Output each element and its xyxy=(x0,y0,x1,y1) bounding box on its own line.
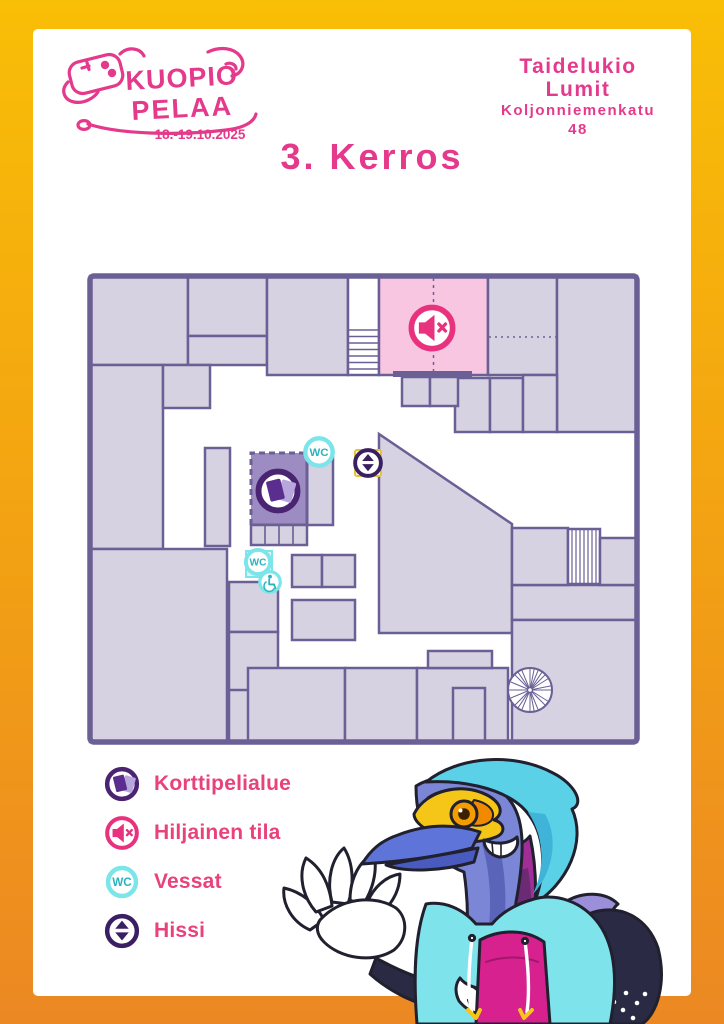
wc-icon xyxy=(104,864,140,900)
logo-text-bottom: PELAA xyxy=(131,91,234,126)
legend-item-quiet-room: Hiljainen tila xyxy=(104,815,291,851)
legend-label: Hissi xyxy=(154,919,205,943)
venue-block: Taidelukio Lumit Koljonniemenkatu 48 xyxy=(478,56,678,138)
legend: Korttipelialue Hiljainen tila Vessat His… xyxy=(104,766,291,949)
accessible-wc-icon xyxy=(260,572,281,593)
wc-icon-upper xyxy=(305,438,332,465)
venue-name-line2: Lumit xyxy=(478,79,678,102)
wc-icon-lower xyxy=(246,550,270,574)
stairs-right xyxy=(568,529,600,584)
event-mascot-bird xyxy=(276,752,664,1024)
quiet-room-icon xyxy=(411,307,452,348)
legend-label: Hiljainen tila xyxy=(154,821,281,845)
elevator-icon xyxy=(104,913,140,949)
rooms xyxy=(90,276,637,742)
venue-name-line1: Taidelukio xyxy=(478,56,678,79)
stairs-top xyxy=(348,276,379,375)
venue-street: Koljonniemenkatu xyxy=(478,103,678,119)
legend-label: Vessat xyxy=(154,870,222,894)
legend-item-card-area: Korttipelialue xyxy=(104,766,291,802)
auditorium-room xyxy=(379,434,512,633)
page-title: 3. Kerros xyxy=(20,136,724,178)
logo-wordmark: KUOPIO PELAA 18.-19.10.2025 xyxy=(125,60,246,142)
elevator-icon xyxy=(355,450,381,476)
floor-plan xyxy=(86,270,642,748)
legend-item-elevator: Hissi xyxy=(104,913,291,949)
legend-label: Korttipelialue xyxy=(154,772,291,796)
card-game-area-icon xyxy=(259,472,298,511)
legend-item-toilets: Vessat xyxy=(104,864,291,900)
card-game-icon xyxy=(104,766,140,802)
muted-speaker-icon xyxy=(104,815,140,851)
kuopio-pelaa-logo: KUOPIO PELAA 18.-19.10.2025 xyxy=(58,38,268,142)
spiral-stairs xyxy=(508,668,552,712)
shirt xyxy=(476,932,550,1024)
